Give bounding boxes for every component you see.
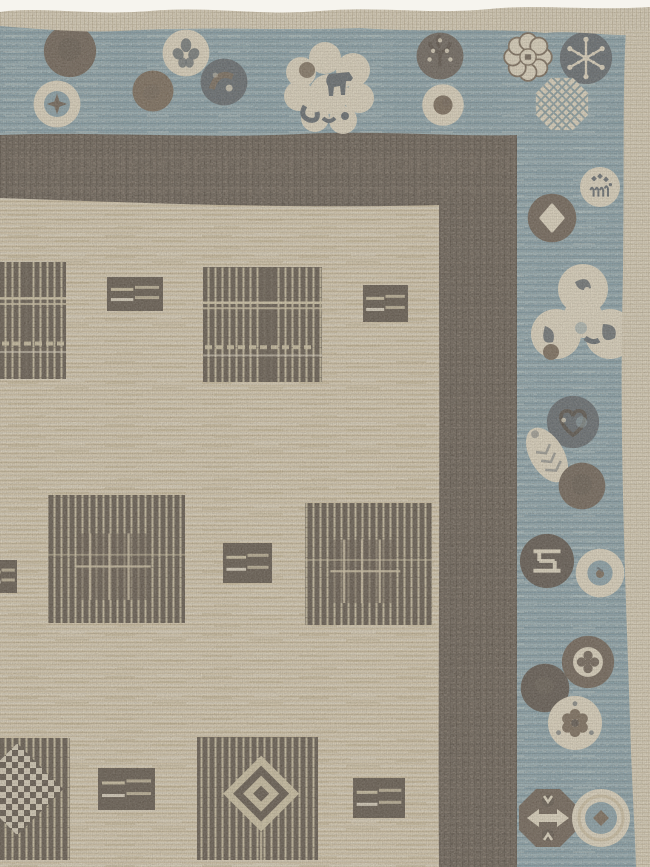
rug-photograph bbox=[0, 0, 650, 867]
texture-overlay bbox=[0, 0, 650, 867]
rug-photo bbox=[0, 0, 650, 867]
